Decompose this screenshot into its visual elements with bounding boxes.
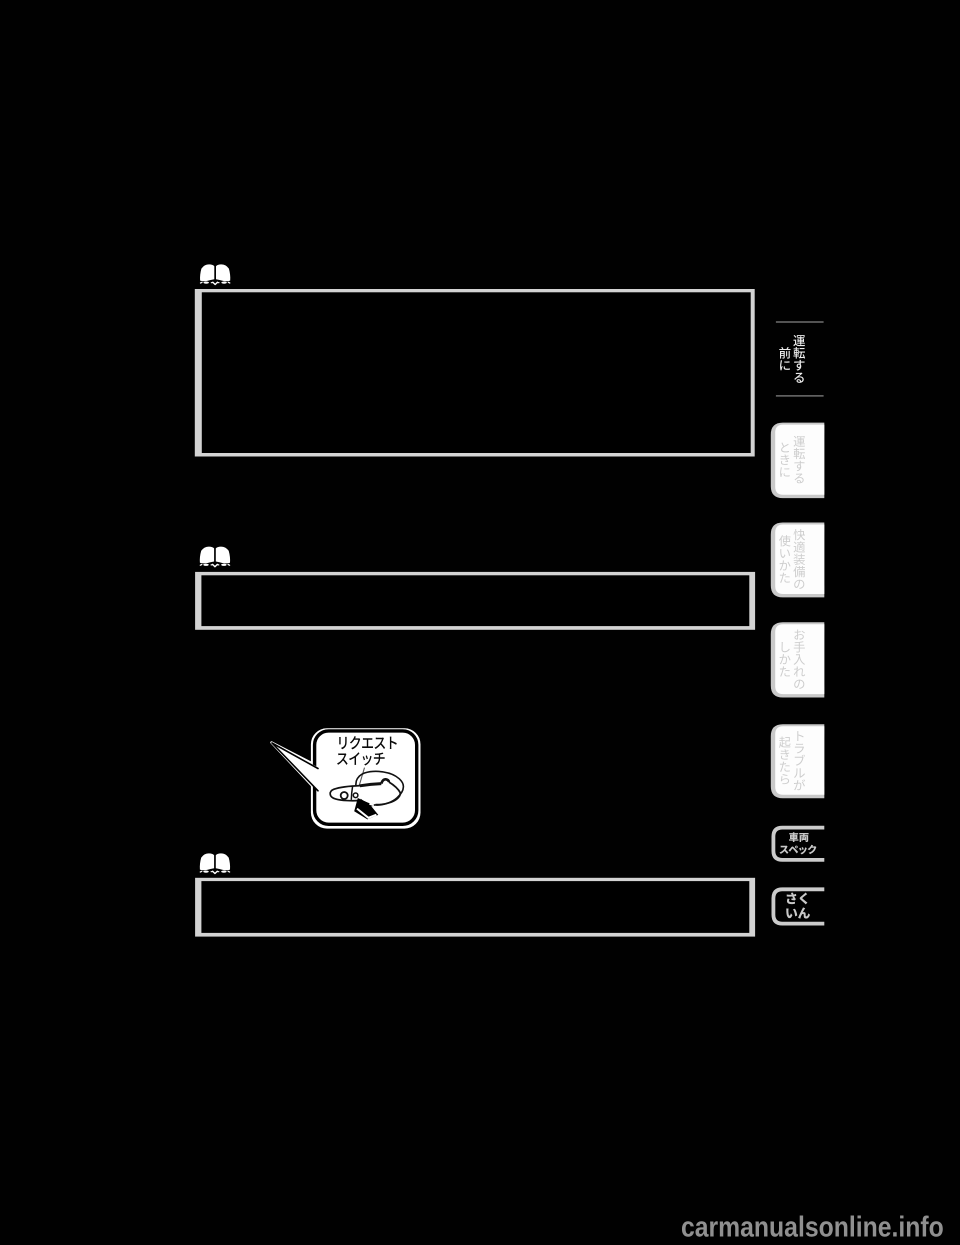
svg-text:carmanualsonline.info: carmanualsonline.info — [681, 1212, 944, 1244]
